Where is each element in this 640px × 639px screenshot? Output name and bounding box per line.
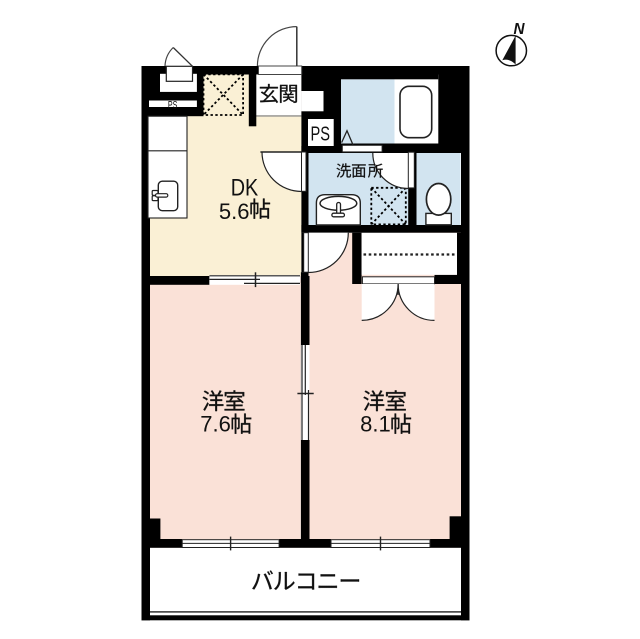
svg-text:N: N (514, 21, 525, 38)
svg-text:7.6: 7.6 (200, 412, 231, 437)
svg-text:PS: PS (311, 123, 331, 146)
svg-text:5.6: 5.6 (219, 199, 250, 224)
svg-text:8.1: 8.1 (360, 412, 391, 437)
svg-text:DK: DK (231, 175, 259, 202)
svg-text:PS: PS (168, 100, 178, 112)
